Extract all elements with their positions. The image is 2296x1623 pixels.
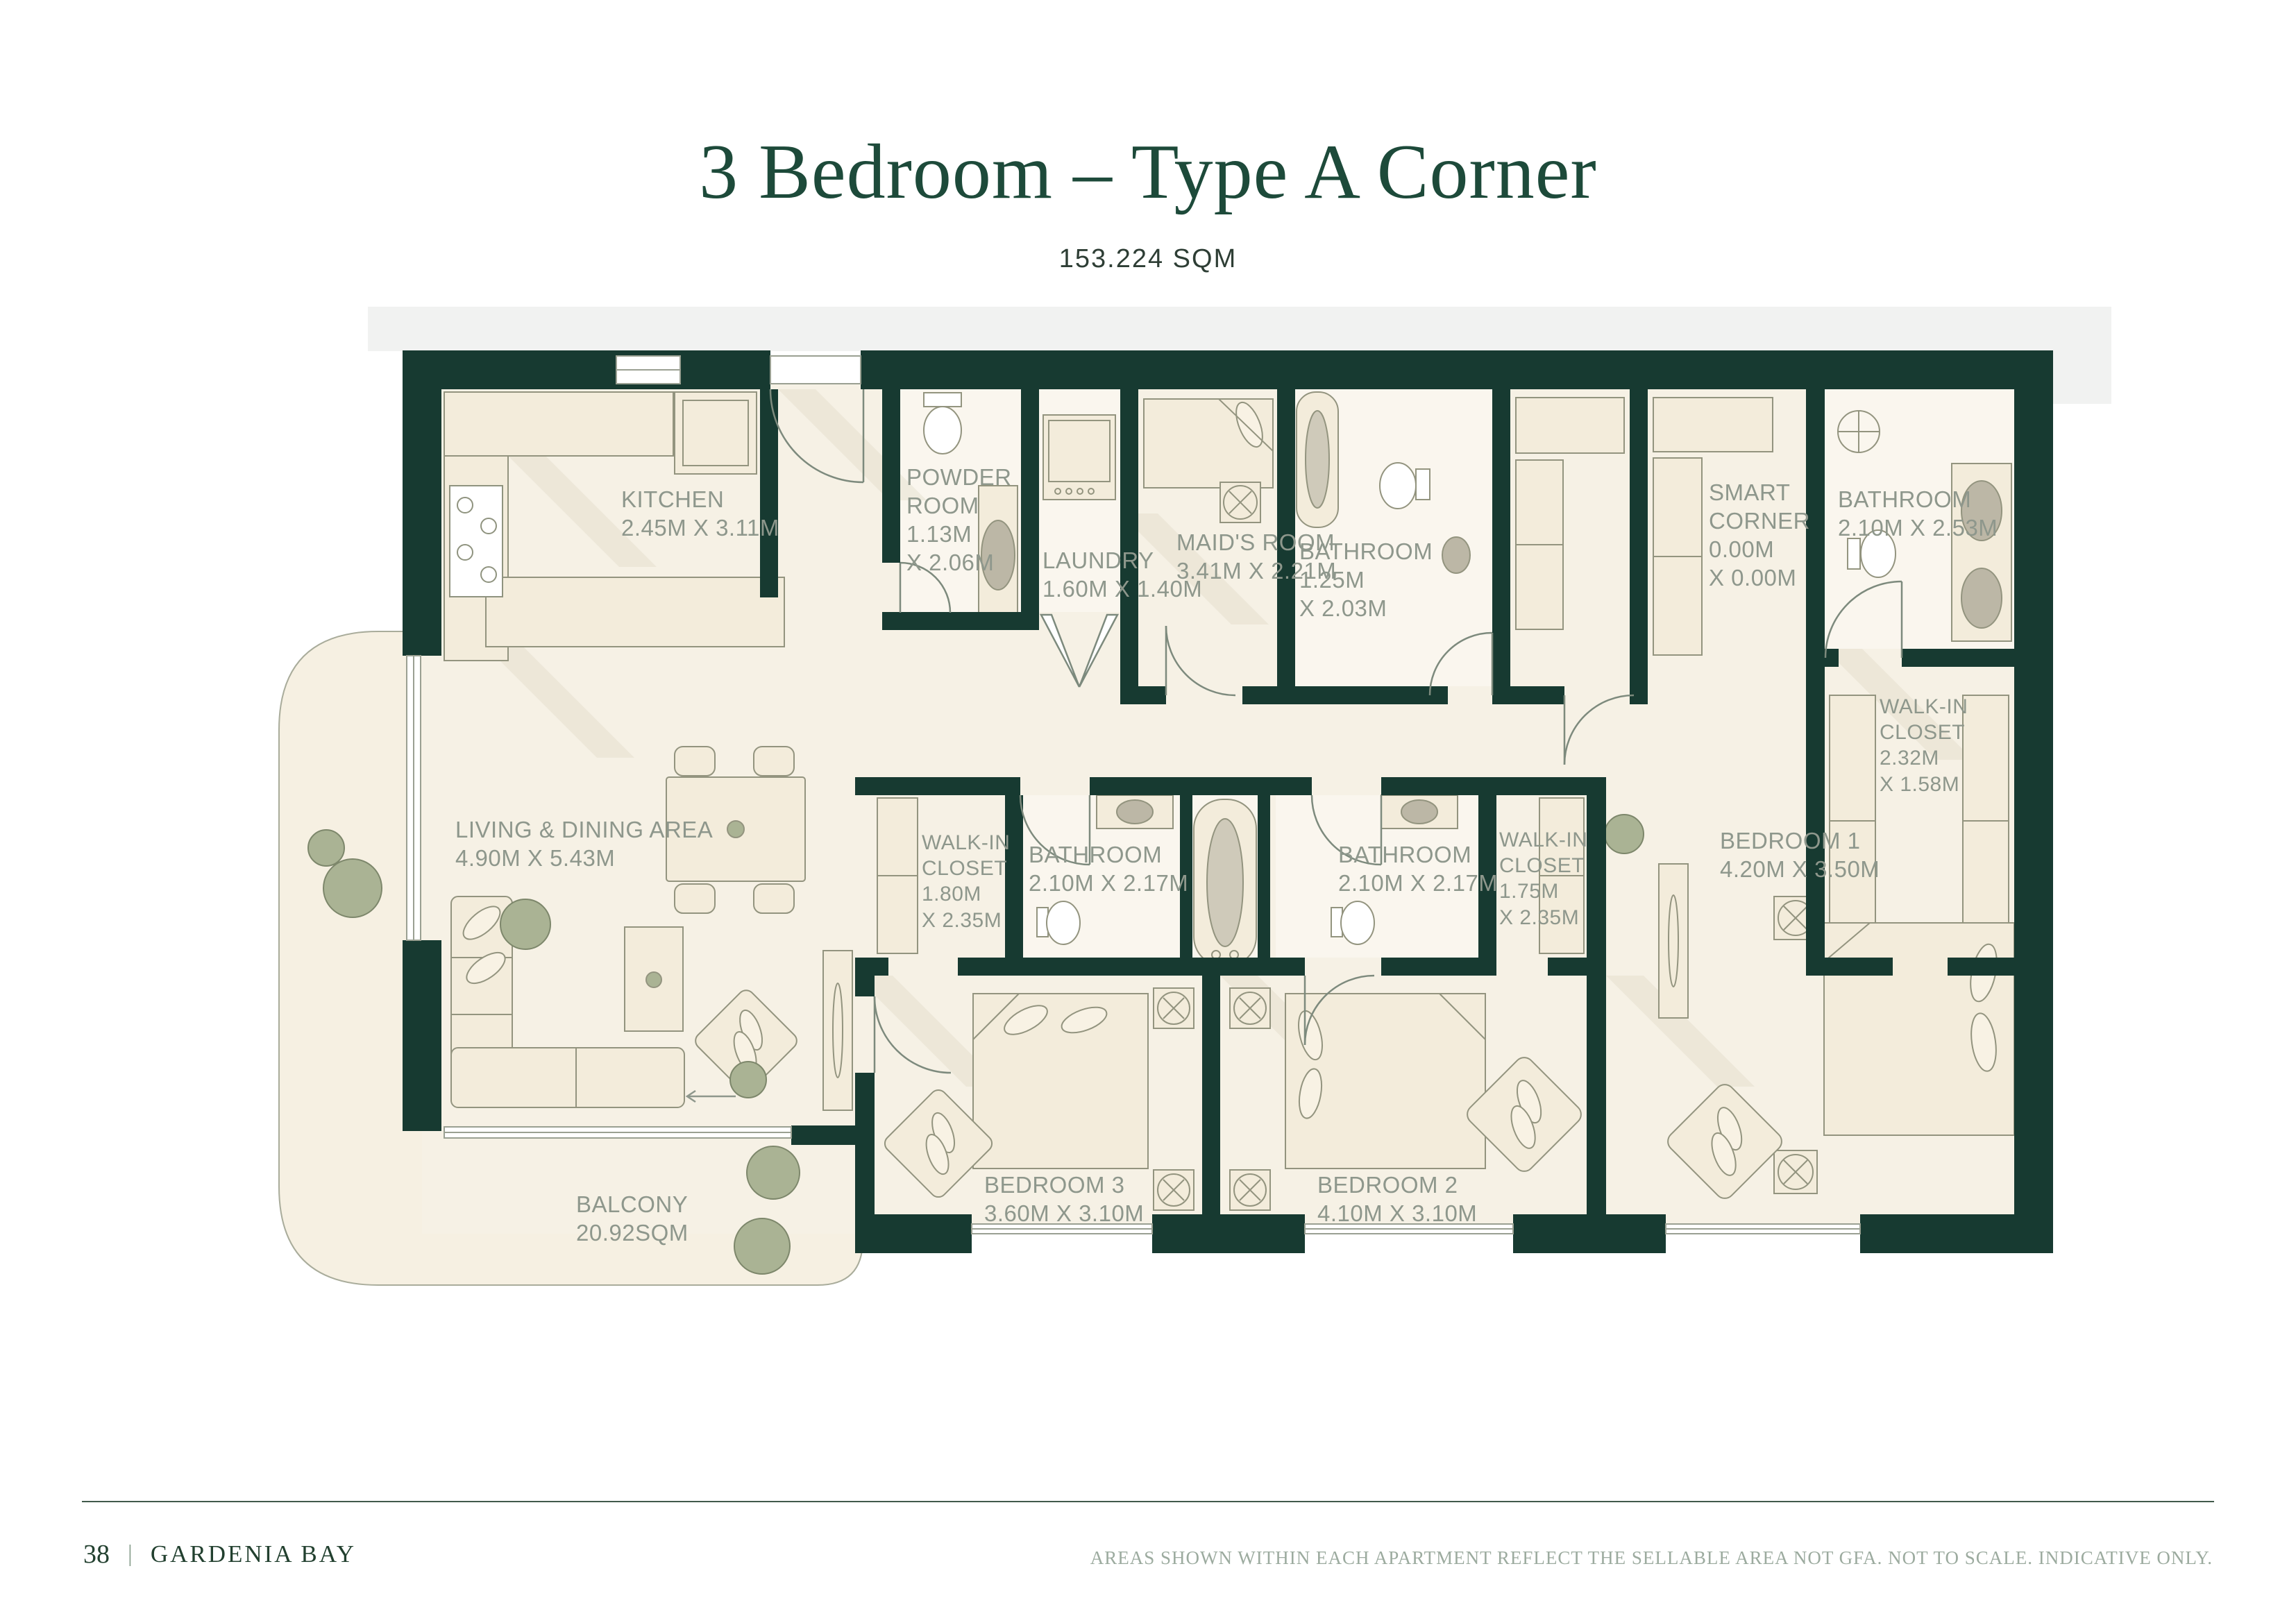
page-number: 38 [83,1539,110,1570]
room-label-smart-corner: SMARTCORNER0.00MX 0.00M [1709,479,1810,593]
room-label-bathroom-2: BATHROOM2.10M X 2.17M [1338,841,1498,898]
footer-disclaimer: AREAS SHOWN WITHIN EACH APARTMENT REFLEC… [1090,1547,2213,1569]
room-label-maid-bathroom: BATHROOM1.25MX 2.03M [1299,538,1433,623]
brochure-page: 3 Bedroom – Type A Corner 153.224 SQM [0,0,2296,1623]
room-label-living-dining: LIVING & DINING AREA4.90M X 5.43M [455,816,713,873]
room-labels: KITCHEN2.45M X 3.11MPOWDERROOM1.13MX 2.0… [0,0,2296,1623]
room-label-bedroom-3: BEDROOM 33.60M X 3.10M [984,1171,1144,1228]
room-label-powder-room: POWDERROOM1.13MX 2.06M [906,464,1012,577]
room-label-balcony: BALCONY20.92SQM [576,1191,689,1248]
room-label-bathroom-3: BATHROOM2.10M X 2.17M [1029,841,1188,898]
room-label-walk-in-closet-1: WALK-INCLOSET2.32MX 1.58M [1880,694,1968,797]
room-label-bedroom-2: BEDROOM 24.10M X 3.10M [1317,1171,1477,1228]
footer-brand: GARDENIA BAY [151,1540,356,1568]
room-label-kitchen: KITCHEN2.45M X 3.11M [621,486,779,543]
room-label-walk-in-closet-2: WALK-INCLOSET1.75MX 2.35M [1499,827,1587,931]
footer-rule [82,1501,2214,1502]
footer-left: 38 | GARDENIA BAY [83,1539,356,1570]
room-label-bathroom-1: BATHROOM2.10M X 2.53M [1838,486,1998,543]
room-label-walk-in-closet-3: WALK-INCLOSET1.80MX 2.35M [922,830,1010,933]
footer-separator: | [128,1541,133,1567]
room-label-bedroom-1: BEDROOM 14.20M X 3.50M [1720,827,1880,884]
